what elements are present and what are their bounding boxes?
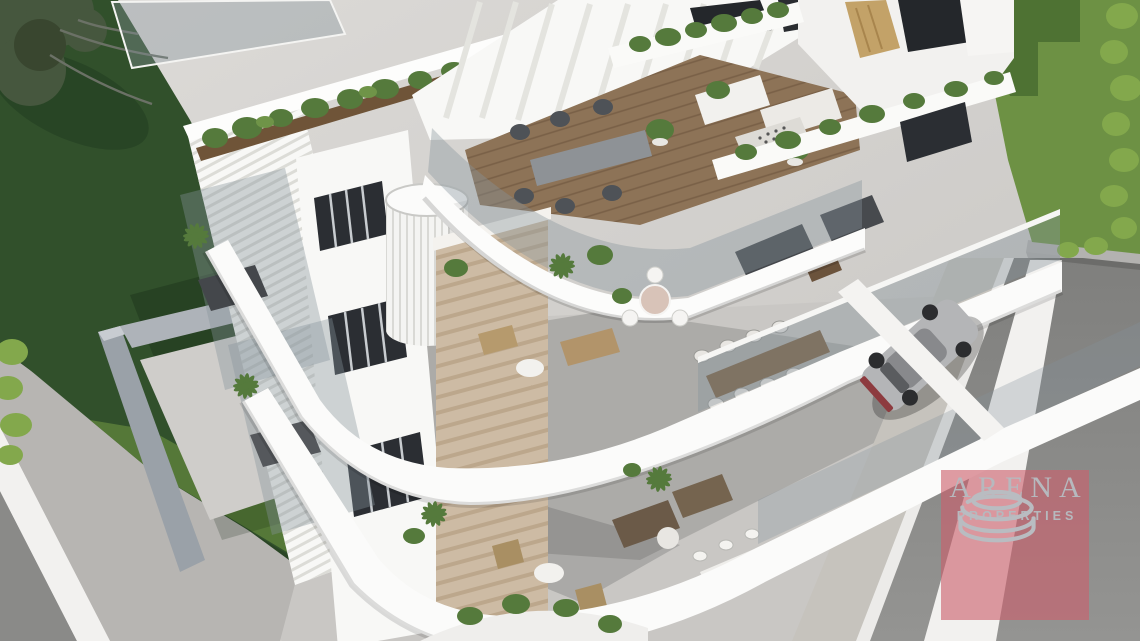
side-table <box>516 359 544 377</box>
render-scene <box>0 0 1140 641</box>
render-image: ARENA PROPERTIES <box>0 0 1140 641</box>
bistro-table <box>640 285 670 315</box>
round-table <box>534 563 564 583</box>
side-table <box>657 527 679 549</box>
